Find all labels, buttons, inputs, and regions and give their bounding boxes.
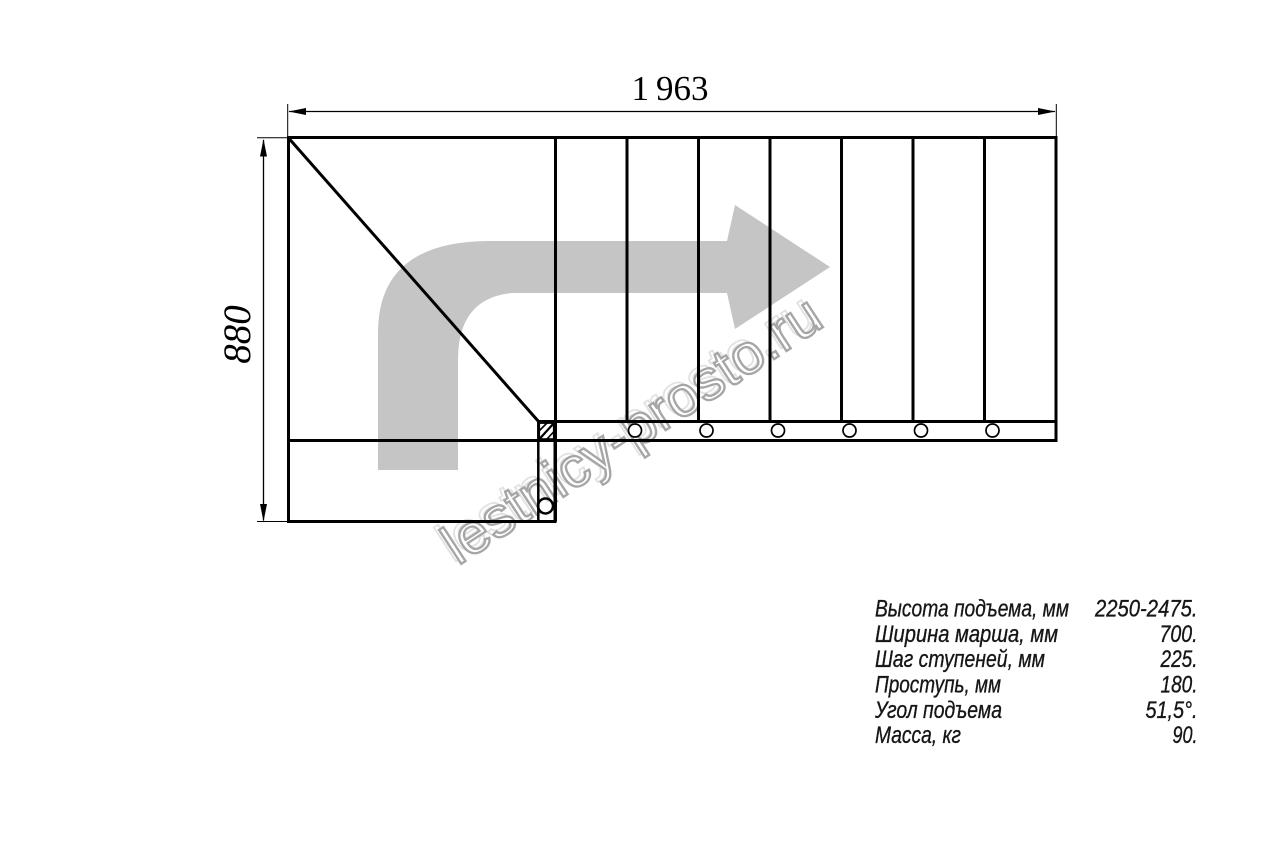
- svg-text:225.: 225.: [1160, 646, 1198, 673]
- svg-text:Высота подъема, мм: Высота подъема, мм: [875, 596, 1069, 623]
- svg-text:1 963: 1 963: [631, 69, 708, 108]
- svg-text:90.: 90.: [1173, 722, 1198, 749]
- svg-text:Проступь, мм: Проступь, мм: [875, 672, 1001, 699]
- svg-text:Ширина марша, мм: Ширина марша, мм: [875, 621, 1058, 648]
- svg-text:Шаг ступеней, мм: Шаг ступеней, мм: [875, 646, 1045, 673]
- svg-text:Угол подъема: Угол подъема: [874, 697, 1002, 724]
- svg-text:180.: 180.: [1161, 672, 1198, 699]
- svg-text:2250-2475.: 2250-2475.: [1094, 596, 1197, 623]
- svg-text:880: 880: [216, 305, 259, 364]
- svg-text:51,5°.: 51,5°.: [1146, 697, 1198, 724]
- svg-text:700.: 700.: [1160, 621, 1198, 648]
- svg-text:Масса, кг: Масса, кг: [875, 722, 961, 749]
